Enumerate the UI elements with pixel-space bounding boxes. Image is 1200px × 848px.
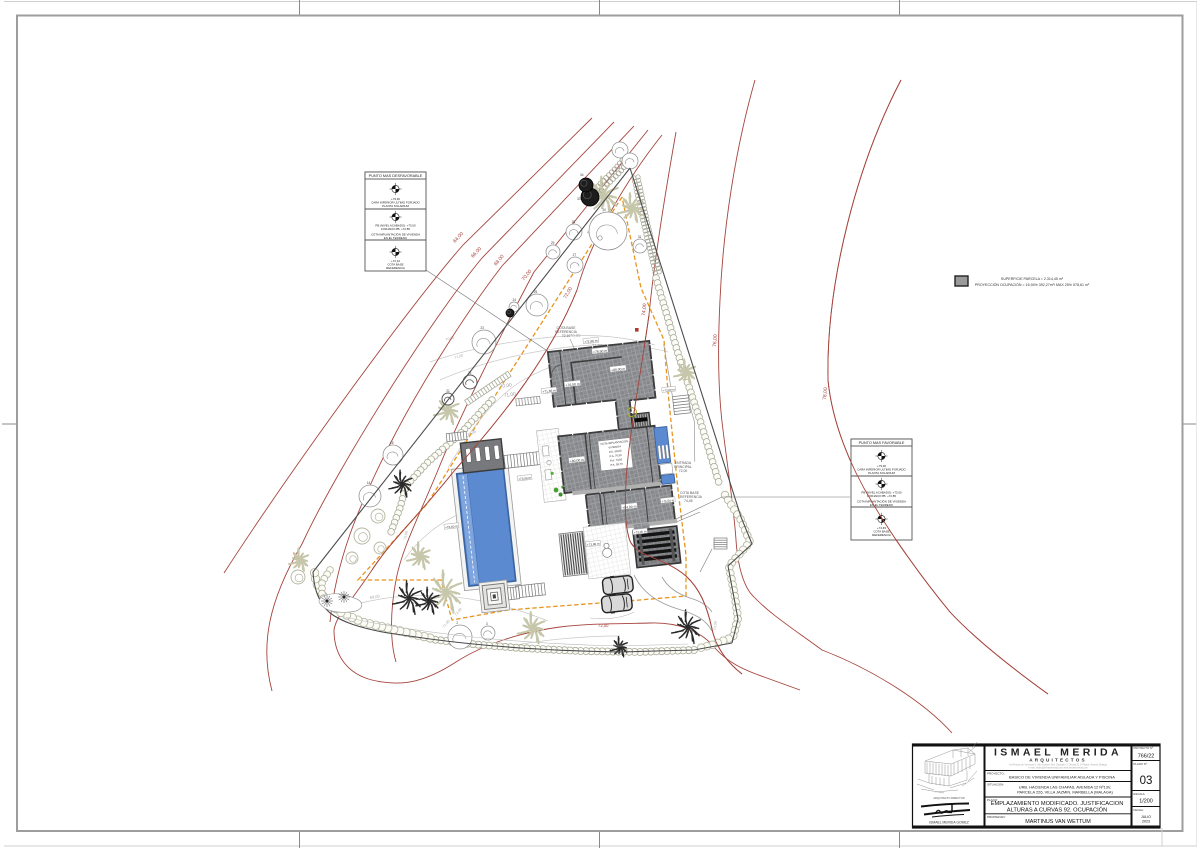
svg-text:ESCALA:: ESCALA: <box>1134 792 1146 796</box>
svg-text:70,00: 70,00 <box>521 269 534 283</box>
svg-text:71,00: 71,00 <box>442 619 451 628</box>
svg-text:PROYECCIÓN OCUPACIÓN = 16,94%: PROYECCIÓN OCUPACIÓN = 16,94% 392,27m²/ … <box>975 282 1090 287</box>
svg-text:23: 23 <box>480 326 484 330</box>
svg-text:+73,00 m: +73,00 m <box>518 476 531 481</box>
svg-text:1/200: 1/200 <box>1139 799 1153 805</box>
svg-text:FORJADO PB: +72,85: FORJADO PB: +72,85 <box>867 494 896 498</box>
svg-text:FORJADO PB: +72,85: FORJADO PB: +72,85 <box>381 227 410 231</box>
svg-text:ALTURAS A CURVAS 92. OCUPACIÓN: ALTURAS A CURVAS 92. OCUPACIÓN <box>1007 807 1107 814</box>
svg-text:SUPERFICIE PARCELA = 2.314,45: SUPERFICIE PARCELA = 2.314,45 m² <box>1001 277 1064 281</box>
svg-text:30: 30 <box>602 208 606 212</box>
svg-text:PLANTA SOLARIUM: PLANTA SOLARIUM <box>382 204 409 208</box>
svg-text:03: 03 <box>1140 775 1153 787</box>
svg-text:PROYECTO Nº:: PROYECTO Nº: <box>1134 746 1154 750</box>
svg-text:ARQUITECTOS: ARQUITECTOS <box>1029 758 1087 763</box>
svg-text:EMPLAZAMIENTO MODIFICADO. JUST: EMPLAZAMIENTO MODIFICADO. JUSTIFICACION <box>991 801 1124 807</box>
svg-text:MARTINUS VAN WETTUM: MARTINUS VAN WETTUM <box>1025 819 1091 825</box>
svg-text:29: 29 <box>551 241 555 245</box>
svg-text:74,45: 74,45 <box>684 499 693 503</box>
svg-text:2: 2 <box>456 621 458 625</box>
svg-text:76,00: 76,00 <box>712 334 719 347</box>
svg-text:66,00: 66,00 <box>470 246 483 259</box>
svg-text:27: 27 <box>573 253 577 257</box>
svg-text:JULIO: JULIO <box>1141 815 1151 819</box>
svg-text:PROYECTO:: PROYECTO: <box>987 772 1005 776</box>
svg-text:PLANTA SOLARIUM: PLANTA SOLARIUM <box>868 471 895 475</box>
svg-text:33: 33 <box>577 197 581 201</box>
svg-text:34: 34 <box>580 173 584 177</box>
svg-text:31: 31 <box>638 235 642 239</box>
svg-text:e-mail: studio@ismaelmerida.co: e-mail: studio@ismaelmerida.com www.isma… <box>1028 766 1087 769</box>
svg-text:BASICO DE VIVIENDA UNIFAMILIAR: BASICO DE VIVIENDA UNIFAMILIAR AISLADA Y… <box>1009 775 1115 780</box>
svg-text:72,00: 72,00 <box>403 531 409 541</box>
svg-text:72,00: 72,00 <box>679 469 688 473</box>
svg-text:+73,00 m: +73,00 m <box>663 387 676 392</box>
svg-text:21: 21 <box>446 389 450 393</box>
svg-text:28: 28 <box>572 220 576 224</box>
svg-text:71,00: 71,00 <box>454 353 464 360</box>
svg-text:ISMAEL MERIDA GOMEZ: ISMAEL MERIDA GOMEZ <box>929 821 969 825</box>
svg-text:PUNTO MAS DESFAVORABLE: PUNTO MAS DESFAVORABLE <box>369 174 423 178</box>
svg-text:ARQUITECTO DIRECTOR: ARQUITECTO DIRECTOR <box>933 796 964 800</box>
svg-text:72,00: 72,00 <box>598 623 609 628</box>
svg-text:766/22: 766/22 <box>1138 754 1155 760</box>
svg-text:14: 14 <box>367 481 371 485</box>
svg-text:72,10: 72,10 <box>562 334 571 338</box>
svg-text:REFERENCIA: REFERENCIA <box>872 533 891 537</box>
svg-text:PUNTO MAS FAVORABLE: PUNTO MAS FAVORABLE <box>859 441 905 445</box>
svg-text:74,00: 74,00 <box>641 303 648 316</box>
svg-text:FECHA:: FECHA: <box>1134 808 1144 812</box>
svg-text:64,00: 64,00 <box>452 231 465 244</box>
svg-text:+73,00 m: +73,00 m <box>445 524 458 529</box>
svg-text:72,00: 72,00 <box>454 607 463 616</box>
svg-text:78,00: 78,00 <box>822 387 829 400</box>
svg-text:2023: 2023 <box>1142 820 1150 824</box>
svg-text:PLANO Nº:: PLANO Nº: <box>1134 762 1148 766</box>
svg-text:EN EL TERRENO: EN EL TERRENO <box>384 236 408 240</box>
svg-text:SITUACION:: SITUACION: <box>987 783 1004 787</box>
svg-text:15: 15 <box>390 441 394 445</box>
svg-text:3: 3 <box>486 622 488 626</box>
svg-text:73,00: 73,00 <box>713 621 718 630</box>
svg-text:24: 24 <box>513 298 517 302</box>
svg-text:68,00: 68,00 <box>493 254 506 268</box>
svg-text:PARCELA 226, VILLA JAZMIN, MAR: PARCELA 226, VILLA JAZMIN, MARBELLA (MAL… <box>1017 790 1113 795</box>
svg-text:REFERENCIA: REFERENCIA <box>386 266 405 270</box>
svg-text:PROPIEDAD:: PROPIEDAD: <box>987 815 1006 819</box>
